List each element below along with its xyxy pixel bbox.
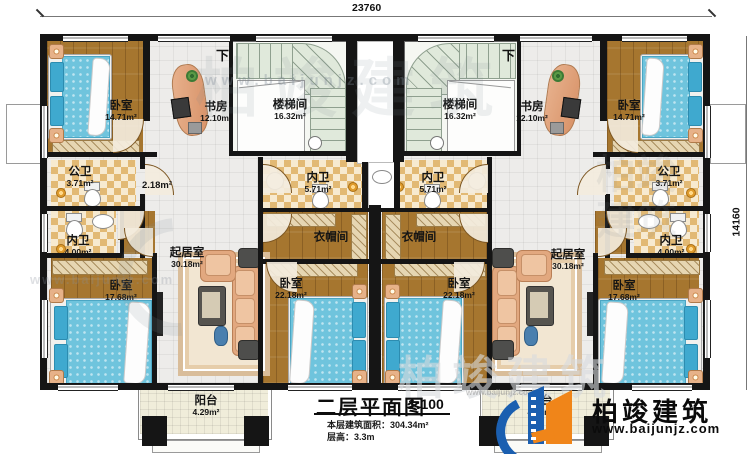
wall-party-right bbox=[393, 34, 404, 162]
toilet bbox=[84, 189, 101, 207]
sliding-door bbox=[168, 384, 234, 391]
wall bbox=[362, 162, 368, 208]
bed-pillow bbox=[684, 306, 698, 340]
label-inner-bath-mid-right: 内卫 5.71m² bbox=[420, 172, 447, 194]
label-bedroom-br: 卧室 17.68m² bbox=[608, 280, 640, 302]
label-public-bath-left: 公卫 3.71m² bbox=[67, 166, 94, 188]
window bbox=[622, 35, 687, 42]
wall bbox=[394, 162, 400, 208]
label-stair-right: 楼梯间 16.32m² bbox=[443, 99, 478, 121]
stair-newel bbox=[430, 136, 444, 150]
stair-newel bbox=[308, 136, 322, 150]
wall bbox=[381, 208, 488, 212]
sofa-cushion bbox=[497, 298, 517, 324]
label-inner-bath-mid-left: 内卫 5.71m² bbox=[305, 172, 332, 194]
shower-knob bbox=[56, 188, 66, 198]
wall bbox=[262, 208, 369, 212]
bay-box-right bbox=[710, 104, 746, 164]
window bbox=[41, 300, 48, 358]
balcony-post bbox=[244, 416, 269, 446]
light-shaft bbox=[357, 41, 395, 164]
stair-down-label-right: 下 bbox=[502, 45, 515, 64]
end-table bbox=[492, 248, 514, 268]
nightstand bbox=[688, 128, 703, 143]
balcony-post bbox=[142, 416, 167, 446]
window bbox=[58, 384, 118, 391]
window bbox=[256, 35, 332, 42]
label-study-right: 书房 12.10m² bbox=[516, 101, 548, 123]
coffee-table-top bbox=[530, 292, 548, 318]
bed-pillow bbox=[50, 62, 64, 92]
figure bbox=[214, 326, 228, 346]
floor-plan-canvas: 23760 14160 下 下 bbox=[0, 0, 750, 454]
window bbox=[704, 106, 711, 158]
bed-pillow bbox=[688, 62, 702, 92]
label-bedroom-bl2: 卧室 22.18m² bbox=[275, 278, 307, 300]
nightstand bbox=[49, 44, 64, 59]
sliding-door bbox=[516, 384, 582, 391]
nightstand bbox=[352, 284, 367, 299]
armchair-cushion bbox=[521, 254, 547, 276]
window bbox=[158, 35, 230, 42]
brand-website: www.baijunjz.com bbox=[592, 421, 720, 436]
coffee-table-top bbox=[202, 292, 220, 318]
end-table bbox=[238, 340, 260, 360]
tv bbox=[587, 292, 593, 336]
nightstand bbox=[49, 288, 64, 303]
label-bedroom-bl: 卧室 17.68m² bbox=[105, 280, 137, 302]
window bbox=[520, 35, 592, 42]
wardrobe-hatch bbox=[604, 260, 700, 275]
window bbox=[632, 384, 692, 391]
window bbox=[288, 384, 352, 391]
stair-down-label-left: 下 bbox=[216, 45, 229, 64]
figure bbox=[524, 326, 538, 346]
stair-flight bbox=[236, 43, 298, 79]
label-inner-bath-small-right: 内卫 4.00m² bbox=[658, 235, 685, 257]
wall-party-left bbox=[346, 34, 357, 162]
bed-pillow bbox=[352, 302, 366, 338]
label-cloak-left: 衣帽间 bbox=[314, 232, 349, 245]
sink bbox=[92, 214, 114, 229]
tv bbox=[157, 292, 163, 336]
right-dimension-line bbox=[746, 36, 747, 390]
label-study-left: 书房 12.10m² bbox=[200, 101, 232, 123]
label-bedroom-tr: 卧室 14.71m² bbox=[613, 100, 645, 122]
bay-box-left bbox=[6, 104, 42, 164]
title-underline bbox=[314, 413, 450, 415]
wall bbox=[517, 41, 521, 155]
wall bbox=[600, 41, 607, 121]
plant bbox=[186, 70, 198, 82]
label-public-bath-right: 公卫 3.71m² bbox=[656, 166, 683, 188]
toilet bbox=[652, 189, 669, 207]
plan-height-line: 层高：3.3m bbox=[327, 430, 375, 443]
label-balcony-left: 阳台 4.29m² bbox=[193, 395, 220, 417]
armchair-cushion bbox=[205, 254, 231, 276]
wall bbox=[404, 151, 521, 156]
keyboard bbox=[188, 122, 202, 134]
sink bbox=[372, 170, 392, 184]
label-hall-left: 2.18m² bbox=[142, 181, 172, 191]
nightstand bbox=[49, 128, 64, 143]
cloak-wardrobe-hatch bbox=[385, 214, 401, 260]
nightstand bbox=[688, 288, 703, 303]
end-table bbox=[238, 248, 260, 268]
window bbox=[398, 384, 462, 391]
window bbox=[418, 35, 494, 42]
computer-monitor bbox=[561, 97, 582, 119]
wardrobe-hatch bbox=[52, 260, 148, 275]
sofa-cushion bbox=[235, 270, 255, 296]
sofa-cushion bbox=[235, 298, 255, 324]
sink bbox=[638, 214, 660, 229]
keyboard bbox=[550, 122, 564, 134]
bed-pillow bbox=[50, 96, 64, 126]
sofa-cushion bbox=[497, 270, 517, 296]
top-dimension-line bbox=[40, 16, 712, 17]
nightstand bbox=[385, 284, 400, 299]
wall bbox=[593, 253, 598, 390]
window bbox=[41, 214, 48, 252]
window bbox=[704, 300, 711, 358]
label-bedroom-tl: 卧室 14.71m² bbox=[105, 100, 137, 122]
label-living-right: 起居室 30.18m² bbox=[551, 249, 586, 271]
wall bbox=[143, 41, 150, 121]
bed-pillow bbox=[54, 306, 68, 340]
wall-party-center bbox=[369, 205, 381, 390]
wall bbox=[229, 151, 346, 156]
nightstand bbox=[688, 44, 703, 59]
wall-top bbox=[40, 34, 710, 41]
plan-scale: 1:100 bbox=[408, 396, 444, 412]
label-living-left: 起居室 30.18m² bbox=[170, 247, 205, 269]
bed-pillow bbox=[386, 302, 400, 338]
top-dimension-value: 23760 bbox=[352, 2, 381, 14]
shower-knob bbox=[348, 182, 358, 192]
computer-monitor bbox=[171, 97, 192, 119]
cloak-wardrobe-hatch bbox=[351, 214, 367, 260]
end-table bbox=[492, 340, 514, 360]
label-cloak-right: 衣帽间 bbox=[402, 232, 437, 245]
wall bbox=[229, 41, 233, 155]
window bbox=[63, 35, 128, 42]
label-inner-bath-small-left: 内卫 4.00m² bbox=[65, 235, 92, 257]
bed-pillow bbox=[688, 96, 702, 126]
right-dimension-value: 14160 bbox=[731, 207, 743, 236]
window bbox=[41, 106, 48, 158]
label-bedroom-br2: 卧室 22.18m² bbox=[443, 278, 475, 300]
label-stair-left: 楼梯间 16.32m² bbox=[273, 99, 308, 121]
shower-knob bbox=[686, 188, 696, 198]
brand-logo-windows bbox=[531, 394, 536, 440]
plant bbox=[552, 70, 564, 82]
window bbox=[704, 214, 711, 252]
